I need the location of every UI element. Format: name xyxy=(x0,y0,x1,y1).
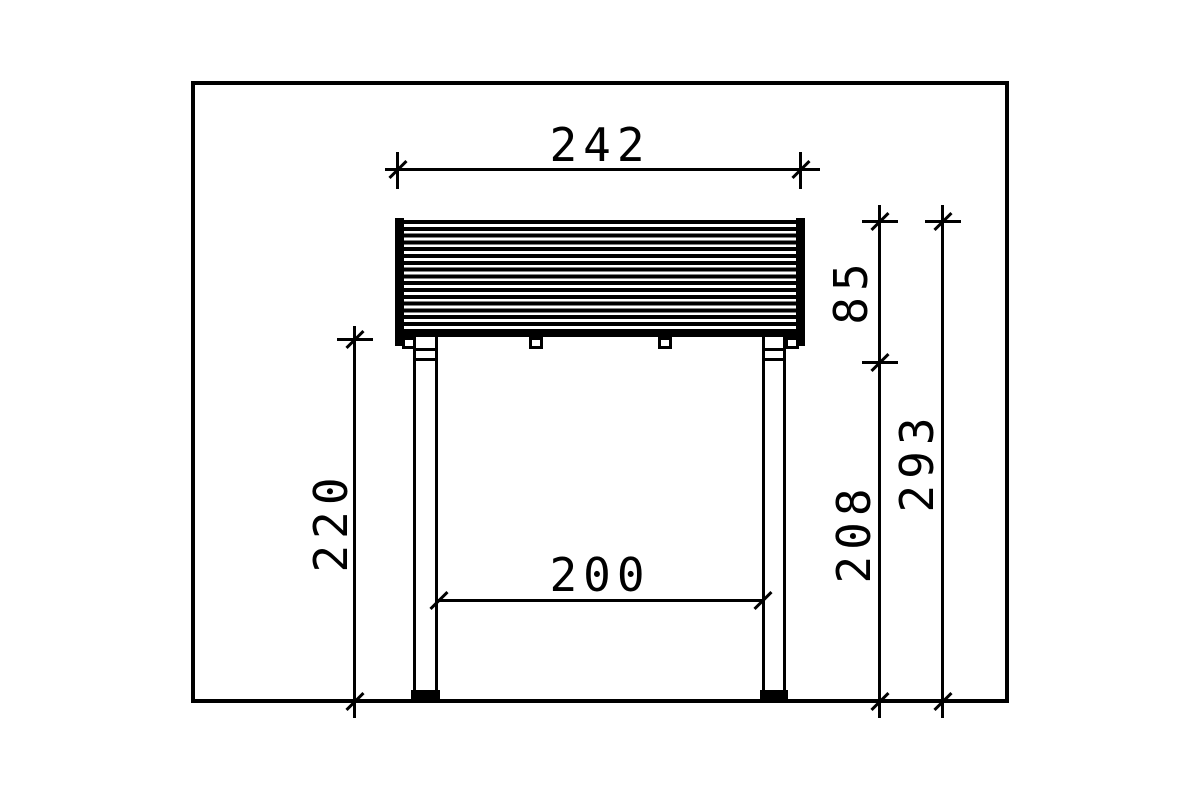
dim-label-clearance-height: 208 xyxy=(831,463,877,603)
post-joint-line xyxy=(762,348,786,351)
roof-slat-panel xyxy=(398,220,802,330)
post-right xyxy=(762,337,786,691)
post-joint-line xyxy=(413,358,438,361)
post-left xyxy=(413,337,438,691)
roof-end-cap-left xyxy=(395,218,404,346)
roof-bracket-tab xyxy=(529,337,543,349)
roof-bracket-tab xyxy=(785,337,799,349)
roof-bracket-tab xyxy=(658,337,672,349)
post-base-left xyxy=(411,690,440,703)
dim-label-roof-width: 242 xyxy=(540,122,660,168)
dim-label-post-height: 220 xyxy=(308,452,354,592)
border-frame xyxy=(191,81,1009,703)
post-base-right xyxy=(760,690,788,703)
post-joint-line xyxy=(413,348,438,351)
post-joint-line xyxy=(762,358,786,361)
roof-end-cap-right xyxy=(796,218,805,346)
canopy-side-view-drawing: 242 200 220 85 208 293 xyxy=(0,0,1200,800)
dim-label-roof-height: 85 xyxy=(828,241,874,341)
roof-bottom-beam xyxy=(398,330,802,337)
dim-label-overall-height: 293 xyxy=(894,392,940,532)
dim-clearance-line xyxy=(878,205,881,718)
dim-label-span: 200 xyxy=(540,552,660,598)
